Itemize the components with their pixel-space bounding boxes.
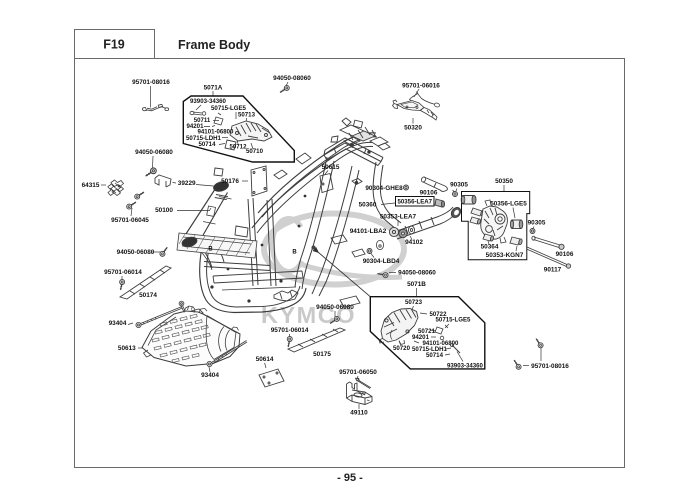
svg-text:50713: 50713	[238, 112, 256, 119]
svg-text:95701-08016: 95701-08016	[531, 363, 569, 370]
svg-text:95701-06045: 95701-06045	[111, 217, 149, 224]
svg-text:50175: 50175	[313, 351, 331, 358]
svg-text:93404: 93404	[201, 372, 219, 379]
svg-text:90305: 90305	[528, 220, 546, 227]
svg-text:50353-KGN7: 50353-KGN7	[486, 252, 524, 259]
svg-text:94102: 94102	[405, 239, 423, 246]
svg-text:90304-LBD4: 90304-LBD4	[363, 258, 400, 265]
svg-text:Frame Body: Frame Body	[178, 38, 250, 52]
svg-text:5071A: 5071A	[204, 85, 223, 92]
svg-text:90106: 90106	[420, 190, 438, 197]
svg-text:94050-08060: 94050-08060	[273, 75, 311, 82]
svg-text:50174: 50174	[139, 292, 157, 299]
svg-text:50364: 50364	[481, 244, 499, 251]
svg-text:50356-LGE5: 50356-LGE5	[490, 201, 527, 208]
svg-text:93903-34360: 93903-34360	[190, 98, 227, 105]
svg-text:B: B	[292, 250, 297, 256]
svg-text:94050-06080: 94050-06080	[135, 149, 173, 156]
svg-text:- 95 -: - 95 -	[337, 472, 363, 484]
svg-text:93404: 93404	[109, 320, 127, 327]
svg-text:94050-06080: 94050-06080	[316, 304, 354, 311]
svg-text:50613: 50613	[118, 345, 136, 352]
svg-text:50615: 50615	[322, 164, 340, 171]
svg-text:95701-06016: 95701-06016	[402, 83, 440, 90]
svg-text:95701-06050: 95701-06050	[339, 369, 377, 376]
svg-text:90305: 90305	[450, 182, 468, 189]
svg-text:50715-LGE5: 50715-LGE5	[436, 317, 472, 324]
svg-text:50723: 50723	[405, 299, 423, 306]
svg-text:94050-08060: 94050-08060	[398, 270, 436, 277]
svg-text:93903-34360: 93903-34360	[447, 363, 484, 370]
svg-text:50320: 50320	[404, 125, 422, 132]
svg-text:39229: 39229	[178, 180, 196, 187]
svg-text:50176: 50176	[221, 178, 239, 185]
svg-text:94101-LBA2: 94101-LBA2	[350, 228, 387, 235]
svg-text:49110: 49110	[350, 410, 368, 417]
svg-text:50356-LEA7: 50356-LEA7	[398, 199, 433, 206]
svg-text:50100: 50100	[155, 207, 173, 214]
svg-text:50614: 50614	[256, 356, 274, 363]
svg-text:B: B	[208, 247, 213, 253]
svg-text:F19: F19	[103, 38, 125, 52]
svg-text:95701-06014: 95701-06014	[271, 327, 309, 334]
svg-text:95701-08016: 95701-08016	[132, 79, 170, 86]
svg-text:5071B: 5071B	[407, 281, 426, 288]
svg-text:90106: 90106	[556, 251, 574, 258]
svg-text:50710: 50710	[246, 148, 264, 155]
svg-text:50350: 50350	[495, 178, 513, 185]
svg-text:94050-06080: 94050-06080	[117, 249, 155, 256]
svg-text:50360: 50360	[359, 202, 377, 209]
svg-text:90304-GHE8: 90304-GHE8	[365, 185, 403, 192]
svg-text:50714: 50714	[426, 352, 444, 359]
svg-text:50353-LEA7: 50353-LEA7	[380, 214, 417, 221]
svg-text:50720: 50720	[393, 345, 411, 352]
svg-text:64315: 64315	[82, 182, 100, 189]
svg-text:50714: 50714	[199, 141, 217, 148]
svg-text:95701-06014: 95701-06014	[104, 269, 142, 276]
svg-text:90117: 90117	[544, 267, 562, 274]
svg-text:50712: 50712	[230, 144, 248, 151]
